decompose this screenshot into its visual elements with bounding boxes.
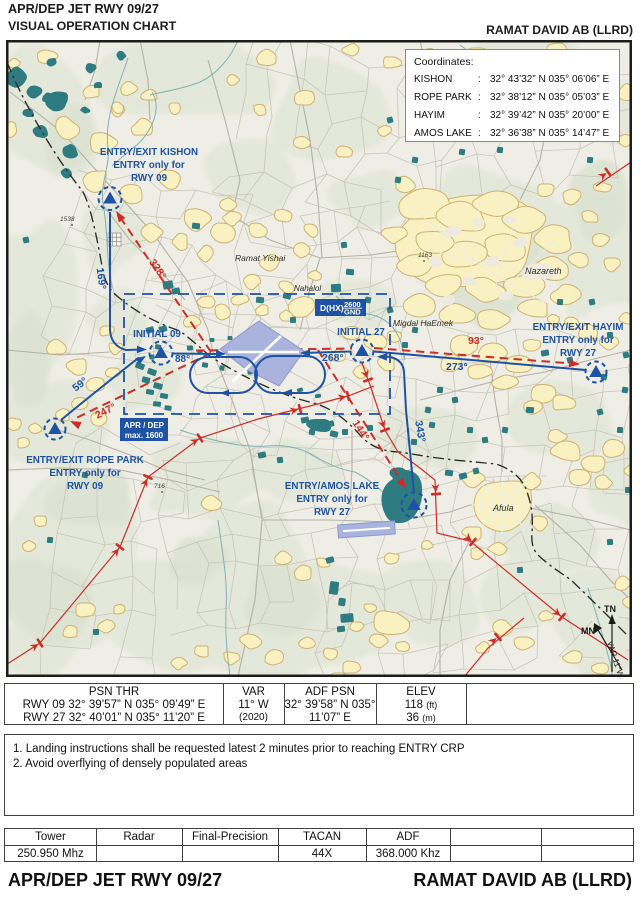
svg-text:Nahalol: Nahalol [294, 284, 321, 293]
svg-text:273°: 273° [446, 361, 468, 373]
svg-text:Afula: Afula [492, 503, 514, 513]
svg-text:Nazareth: Nazareth [525, 266, 562, 276]
svg-text:RWY 09: RWY 09 [67, 481, 104, 492]
svg-text:INITIAL 27: INITIAL 27 [337, 327, 385, 338]
svg-text:ENTRY only for: ENTRY only for [49, 468, 120, 479]
svg-text:APR / DEP: APR / DEP [124, 421, 165, 430]
svg-text:ENTRY/EXIT KISHON: ENTRY/EXIT KISHON [100, 147, 198, 158]
svg-text:MN: MN [581, 626, 595, 636]
svg-text:Migdal HaEmek: Migdal HaEmek [393, 318, 454, 328]
svg-text:1163: 1163 [418, 252, 432, 259]
svg-text:RWY 09: RWY 09 [131, 173, 168, 184]
svg-text:max. 1600: max. 1600 [125, 431, 164, 440]
svg-text:Ramat Yishai: Ramat Yishai [235, 253, 286, 263]
svg-text:ENTRY only for: ENTRY only for [296, 494, 367, 505]
svg-text:716: 716 [154, 483, 165, 490]
svg-text:D(HX): D(HX) [320, 303, 344, 313]
svg-text:ENTRY/AMOS LAKE: ENTRY/AMOS LAKE [285, 481, 380, 492]
svg-text:88°: 88° [175, 354, 190, 365]
svg-text:ENTRY/EXIT HAYIM: ENTRY/EXIT HAYIM [533, 322, 624, 333]
svg-text:RWY 27: RWY 27 [314, 507, 351, 518]
svg-text:ENTRY/EXIT ROPE PARK: ENTRY/EXIT ROPE PARK [26, 455, 144, 466]
svg-text:TN: TN [604, 604, 616, 614]
svg-text:RWY 27: RWY 27 [560, 348, 597, 359]
svg-text:1538: 1538 [60, 216, 75, 223]
svg-text:268°: 268° [322, 352, 344, 364]
svg-text:ENTRY only for: ENTRY only for [542, 335, 613, 346]
svg-text:GND: GND [344, 308, 361, 317]
svg-text:ENTRY only for: ENTRY only for [113, 160, 184, 171]
svg-text:INITIAL 09: INITIAL 09 [133, 329, 181, 340]
svg-text:93°: 93° [468, 335, 484, 347]
